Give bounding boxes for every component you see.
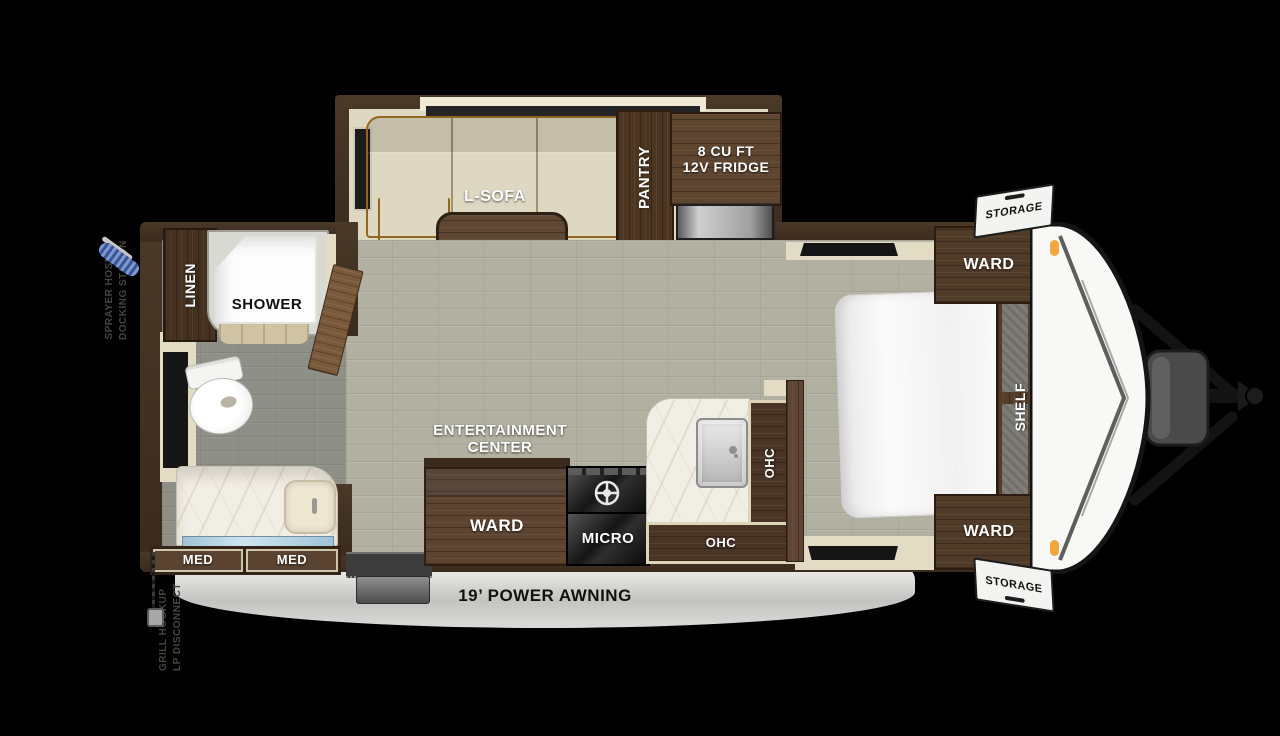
entry-step-lower [356,576,430,604]
entertainment-center-label: ENTERTAINMENT CENTER [420,422,580,457]
ward-bottom-label: WARD [964,523,1015,541]
ward-back-wall [424,458,570,467]
entry-step-upper [346,552,432,578]
vanity-faucet-icon [312,498,317,514]
stove-burner-icon [592,478,622,508]
pantry-label: PANTRY [636,146,653,209]
micro-label: MICRO [582,530,635,547]
med-left-label: MED [183,553,213,568]
kitchen-faucet-icon [729,446,737,454]
kitchen-ward-cabinet: WARD [424,467,570,566]
grill-hookup-pipe-icon [152,552,155,610]
med-cabinet-right: MED [243,546,341,575]
entertainment-label-line1: ENTERTAINMENT [433,422,567,439]
sprayer-label-line1: SPRAYER HOSE [104,255,115,340]
fridge-label-line1: 8 CU FT [698,143,754,159]
linen-label: LINEN [182,263,198,308]
kitchen-ward-label: WARD [470,516,524,536]
rear-wall [140,222,162,572]
marker-light-bottom-icon [1050,540,1059,556]
storage-handle-icon [1005,193,1025,200]
grill-hookup-fitting-icon [147,608,164,627]
fridge-label-line2: 12V FRIDGE [683,159,770,175]
ohc-lower-cabinet: OHC [646,522,796,564]
entertainment-label-line2: CENTER [468,439,533,456]
shelf-label: SHELF [1012,383,1028,431]
stove-cooktop [566,466,650,514]
bedroom-partition-wall [786,380,804,562]
front-cap [1030,222,1156,574]
storage-bottom-label: STORAGE [985,574,1043,596]
marker-light-top-icon [1050,240,1059,256]
floorplan-canvas: 19’ POWER AWNING L-SOFA TABLE PANTRY 8 C… [0,0,1280,736]
ward-top-label: WARD [964,256,1015,274]
bedroom-ward-bottom: WARD [934,494,1044,570]
bedroom-top-window [800,243,898,256]
microwave: MICRO [566,512,650,566]
storage-top-label: STORAGE [985,200,1043,222]
kitchen-sink [696,418,748,488]
vanity-sink [284,480,336,534]
grill-label-line2: LP DISCONNECT [172,556,183,671]
fridge: 8 CU FT 12V FRIDGE [670,112,782,206]
pantry-cabinet: PANTRY [616,110,674,244]
bedroom-bottom-window [808,546,898,560]
l-sofa-label: L-SOFA [430,188,560,206]
fridge-front-vent [676,204,774,240]
ohc-upper-label: OHC [763,448,778,478]
bedroom-ward-top: WARD [934,226,1044,304]
shower-label: SHOWER [215,296,319,313]
med-right-label: MED [277,553,307,568]
ohc-lower-label: OHC [706,536,736,551]
storage-handle-icon [1005,596,1025,603]
bed-mattress [834,289,1006,519]
shower-curtain [219,324,309,344]
